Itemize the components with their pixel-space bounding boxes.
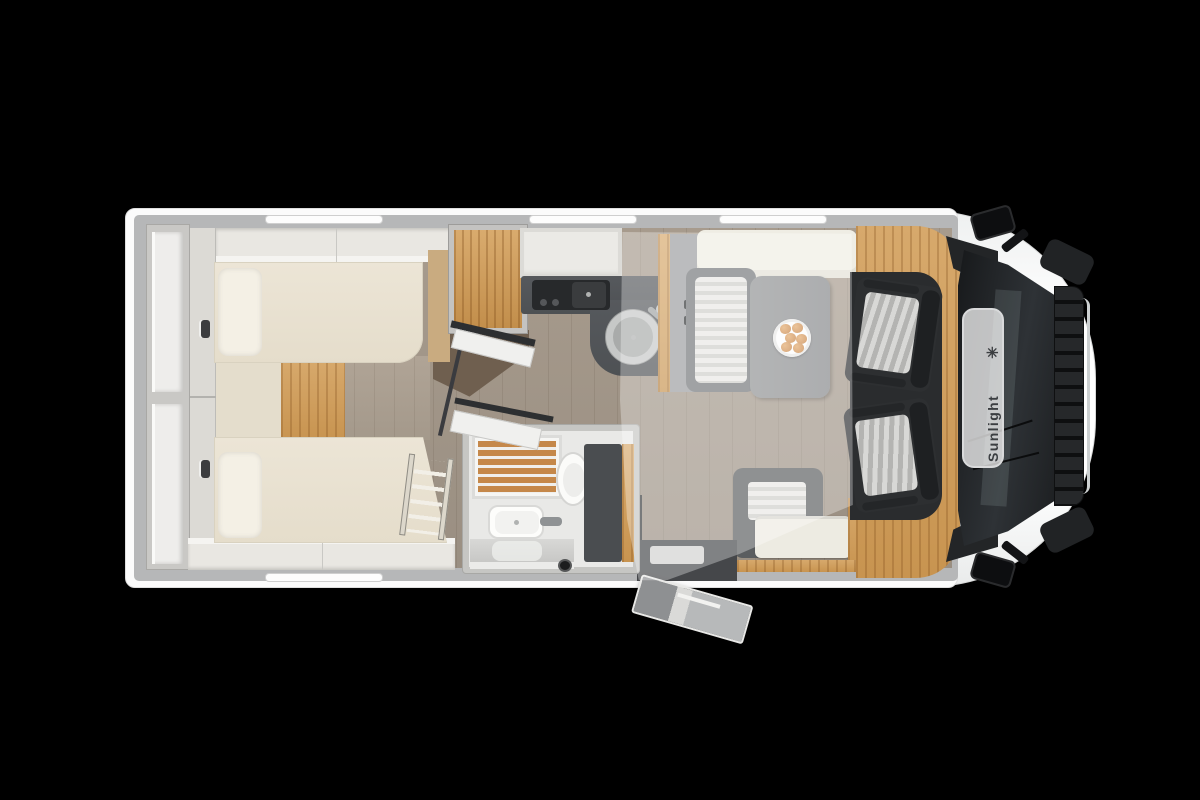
hob-sink-bowl xyxy=(572,282,606,308)
hob-two-burner xyxy=(532,280,610,310)
window-top-dinette xyxy=(719,215,827,224)
wardrobe-handle-icon xyxy=(201,460,210,478)
floorplan-canvas: ✳ Sunlight xyxy=(0,0,1200,800)
washbasin-faucet xyxy=(540,517,562,526)
locker-divider xyxy=(336,228,337,262)
window-top-kitchen xyxy=(529,215,637,224)
drain xyxy=(586,292,591,297)
wardrobe-divider xyxy=(190,396,216,398)
window-top-rear xyxy=(265,215,383,224)
kitchen-overhead-locker xyxy=(520,228,622,278)
hob-knob xyxy=(540,299,547,306)
rear-shelf-lower xyxy=(152,404,183,564)
bedroom-wood-platform xyxy=(281,360,345,440)
seat-cushion xyxy=(854,414,918,497)
door-window-line xyxy=(677,593,720,609)
cassette-cap xyxy=(558,559,572,572)
tall-wardrobe-interior xyxy=(454,230,522,328)
bed-side-panel xyxy=(428,250,450,362)
bathroom-wall-panel xyxy=(584,444,622,562)
drain xyxy=(514,520,519,525)
tall-wardrobe xyxy=(448,224,528,334)
front-grille xyxy=(1054,286,1084,506)
shower-teak-grate xyxy=(478,441,556,493)
overhead-lockers-top xyxy=(216,228,456,262)
hob-knob xyxy=(552,299,559,306)
seat-cushion xyxy=(856,291,920,374)
wardrobe-handle-icon xyxy=(201,320,210,338)
cab-seat-passenger xyxy=(843,396,950,522)
toilet-seat xyxy=(563,463,585,497)
entry-floor-sill xyxy=(737,560,858,572)
single-bed-left xyxy=(214,262,423,363)
front-chrome-trim xyxy=(1082,298,1090,494)
bedroom-wardrobes xyxy=(190,228,216,568)
rear-garage-shelving xyxy=(146,224,190,570)
bedroom-step-bench xyxy=(214,358,282,440)
window-bottom-rear xyxy=(265,573,383,582)
sunlight-logo-icon: ✳ xyxy=(986,344,1006,364)
cab-seat-driver xyxy=(843,276,950,402)
washbasin xyxy=(488,505,544,539)
brand-name: Sunlight xyxy=(985,395,1001,462)
pillow xyxy=(218,268,262,356)
pillow xyxy=(218,452,262,538)
washbasin-reflection xyxy=(492,541,542,561)
rear-shelf-upper xyxy=(152,232,183,392)
